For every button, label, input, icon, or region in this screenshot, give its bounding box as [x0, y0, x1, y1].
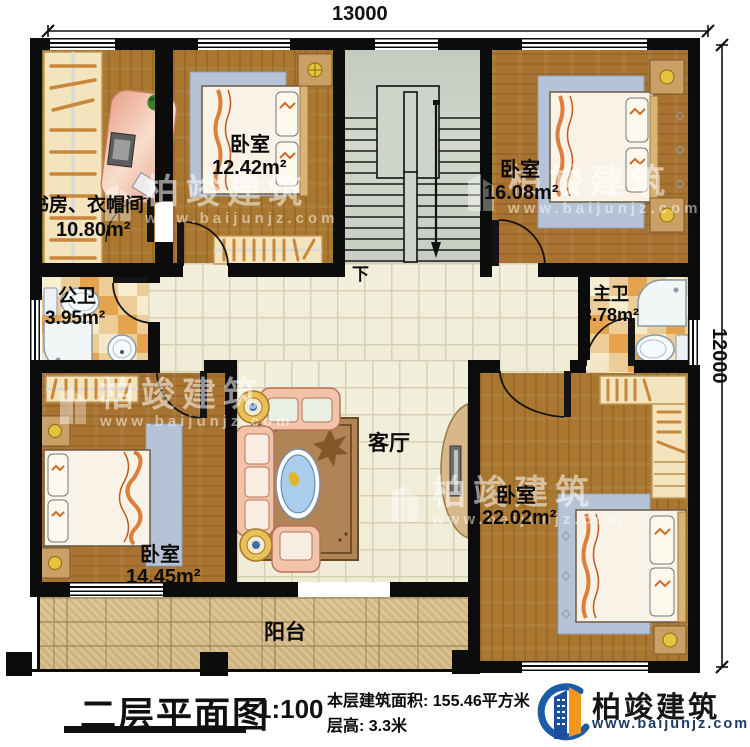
wall-mid2-d	[570, 360, 586, 373]
wall-south-a	[30, 582, 70, 597]
wall-bedroomd-west	[468, 373, 480, 661]
room-area-public-bath: 3.95m²	[45, 309, 105, 329]
sink-icon	[108, 335, 136, 363]
window-north-bedroom-a	[198, 38, 290, 50]
room-area-bedroom-d: 22.02m²	[482, 508, 557, 529]
wall-stair-east	[480, 50, 492, 277]
room-label-master-bath: 主卫	[593, 285, 629, 304]
room-area-study: 10.80m²	[56, 220, 131, 241]
wall-south-c	[390, 582, 480, 597]
wall-mid2-c	[468, 360, 500, 373]
balcony-post	[6, 652, 32, 676]
coffee-table-icon	[276, 449, 320, 519]
dimension-width-label: 13000	[332, 3, 388, 26]
toilet-icon	[636, 335, 688, 363]
wall-bedroomc-east	[225, 373, 237, 582]
brand-logo-icon	[534, 681, 592, 747]
plan-scale: 1:100	[257, 694, 324, 725]
door-swings	[106, 198, 635, 595]
balcony-post	[452, 650, 480, 674]
shower-icon	[638, 280, 686, 326]
room-area-master-bath: 3.78m²	[582, 306, 639, 325]
wall-pubbath-east-jamb	[148, 277, 160, 283]
room-label-public-bath: 公卫	[58, 287, 96, 307]
floor-plan-page: 柏竣建筑 www.baijunjz.com 柏竣建筑 www.baijunjz.…	[0, 0, 750, 747]
stairs-icon	[345, 86, 480, 262]
room-label-study: 书房、衣帽间	[30, 196, 144, 216]
closet-icon	[600, 376, 686, 498]
wall-study-east-lower	[155, 242, 173, 277]
balcony-edge-west	[37, 597, 40, 672]
balcony-sliding-door	[298, 582, 390, 597]
window-north-stair	[375, 38, 438, 50]
closet-icon	[46, 376, 138, 402]
wall-bedroomd-south-b	[648, 661, 700, 673]
room-label-bedroom-d: 卧室	[496, 486, 536, 507]
room-area-bedroom-b: 16.08m²	[484, 183, 559, 204]
window-north-study	[50, 38, 115, 50]
room-area-bedroom-c: 14.45m²	[126, 567, 201, 588]
window-south-bedroom-d	[522, 661, 648, 673]
wall-mid1-b	[228, 263, 333, 277]
room-label-living: 客厅	[368, 433, 410, 455]
window-west-pubbath	[30, 300, 42, 360]
wall-mid1-c	[538, 263, 700, 277]
plan-floor-height: 层高: 3.3米	[327, 712, 407, 736]
bed-icon	[538, 60, 684, 232]
dimension-height-label: 12000	[707, 328, 730, 384]
room-label-bedroom-a: 卧室	[230, 135, 270, 156]
tv-cabinet-icon	[441, 404, 468, 538]
plan-title-underline	[64, 726, 246, 733]
room-label-bedroom-c: 卧室	[140, 545, 180, 566]
closet-icon	[214, 236, 322, 264]
bed-icon	[558, 494, 686, 654]
wall-pubbath-east	[148, 322, 160, 373]
wall-mid2-a	[30, 360, 157, 373]
stairs-down-label: 下	[352, 266, 369, 284]
wall-mid2-b	[204, 360, 237, 373]
room-label-bedroom-b: 卧室	[500, 160, 540, 181]
balcony-edge-south	[18, 669, 480, 672]
wall-study-east-upper	[155, 50, 173, 202]
window-north-bedroom-b	[522, 38, 647, 50]
balcony-post	[200, 652, 228, 676]
wall-stair-west	[333, 50, 345, 277]
plan-floor-area: 本层建筑面积: 155.46平方米	[327, 687, 530, 711]
window-east-masterbath	[688, 320, 700, 365]
room-label-balcony: 阳台	[264, 622, 306, 644]
room-area-bedroom-a: 12.42m²	[212, 158, 287, 179]
plan-drawing-layer	[0, 0, 750, 747]
brand-website: www.baijunjz.com	[592, 716, 749, 732]
